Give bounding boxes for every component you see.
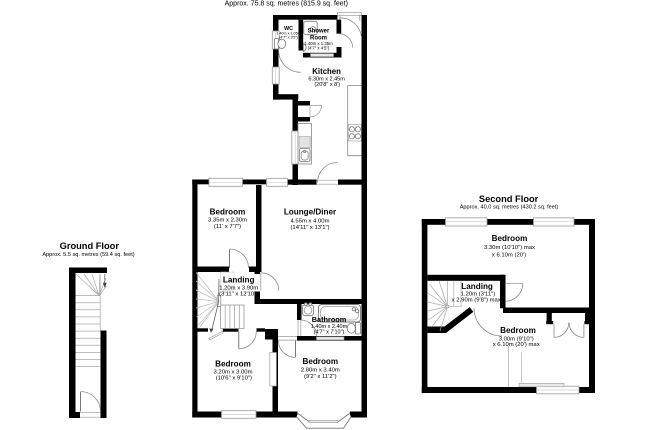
svg-text:(20'8" x 8'): (20'8" x 8') bbox=[314, 82, 340, 88]
svg-text:(3'11" x 12'10"): (3'11" x 12'10") bbox=[219, 292, 258, 298]
svg-text:x 2.90m (9'8") max: x 2.90m (9'8") max bbox=[452, 297, 501, 303]
svg-text:1.20m x 3.90m: 1.20m x 3.90m bbox=[219, 285, 258, 291]
svg-text:Landing: Landing bbox=[461, 282, 493, 291]
svg-text:Bedroom: Bedroom bbox=[492, 234, 528, 243]
svg-text:Approx. 5.5 sq. metres (59.4 s: Approx. 5.5 sq. metres (59.4 sq. feet) bbox=[42, 252, 134, 258]
svg-text:Bedroom: Bedroom bbox=[210, 208, 246, 217]
svg-text:Shower: Shower bbox=[308, 29, 330, 35]
svg-text:Approx. 40.0 sq. metres (430.2: Approx. 40.0 sq. metres (430.2 sq. feet) bbox=[460, 205, 559, 211]
svg-text:Second Floor: Second Floor bbox=[479, 194, 539, 204]
svg-text:Approx. 75.8 sq. metres (815.9: Approx. 75.8 sq. metres (815.9 sq. feet) bbox=[225, 1, 348, 8]
svg-text:3.35m x 2.30m: 3.35m x 2.30m bbox=[208, 218, 247, 224]
svg-text:3.30m (10'10") max: 3.30m (10'10") max bbox=[484, 245, 535, 251]
svg-text:(4'7" x 3'5"): (4'7" x 3'5") bbox=[279, 35, 298, 39]
svg-text:x 6.10m (20') max: x 6.10m (20') max bbox=[493, 342, 540, 348]
svg-text:(11' x 7'7"): (11' x 7'7") bbox=[214, 224, 241, 230]
svg-text:4.55m x 4.00m: 4.55m x 4.00m bbox=[291, 219, 330, 225]
svg-text:2.80m x 3.40m: 2.80m x 3.40m bbox=[301, 368, 340, 374]
svg-text:Ground Floor: Ground Floor bbox=[60, 241, 120, 251]
svg-text:Bathroom: Bathroom bbox=[312, 315, 347, 324]
svg-text:(14'11" x 13'1"): (14'11" x 13'1") bbox=[290, 225, 329, 231]
svg-text:Lounge/Diner: Lounge/Diner bbox=[284, 208, 337, 217]
svg-text:(9'2" x 11'2"): (9'2" x 11'2") bbox=[304, 374, 337, 380]
svg-text:Bedroom: Bedroom bbox=[302, 357, 338, 366]
svg-text:(4'7" x 4'5"): (4'7" x 4'5") bbox=[308, 46, 330, 51]
svg-text:(10'6" x 9'10"): (10'6" x 9'10") bbox=[216, 376, 252, 382]
svg-text:Landing: Landing bbox=[223, 276, 255, 285]
svg-text:(4'7" x 7'10"): (4'7" x 7'10") bbox=[314, 329, 345, 335]
svg-text:Kitchen: Kitchen bbox=[312, 67, 341, 76]
svg-text:Bedroom: Bedroom bbox=[500, 326, 536, 335]
svg-text:3.20m x 3.00m: 3.20m x 3.00m bbox=[214, 369, 253, 375]
svg-text:Bedroom: Bedroom bbox=[215, 359, 251, 368]
svg-text:x 6.10m (20'): x 6.10m (20') bbox=[492, 252, 526, 258]
